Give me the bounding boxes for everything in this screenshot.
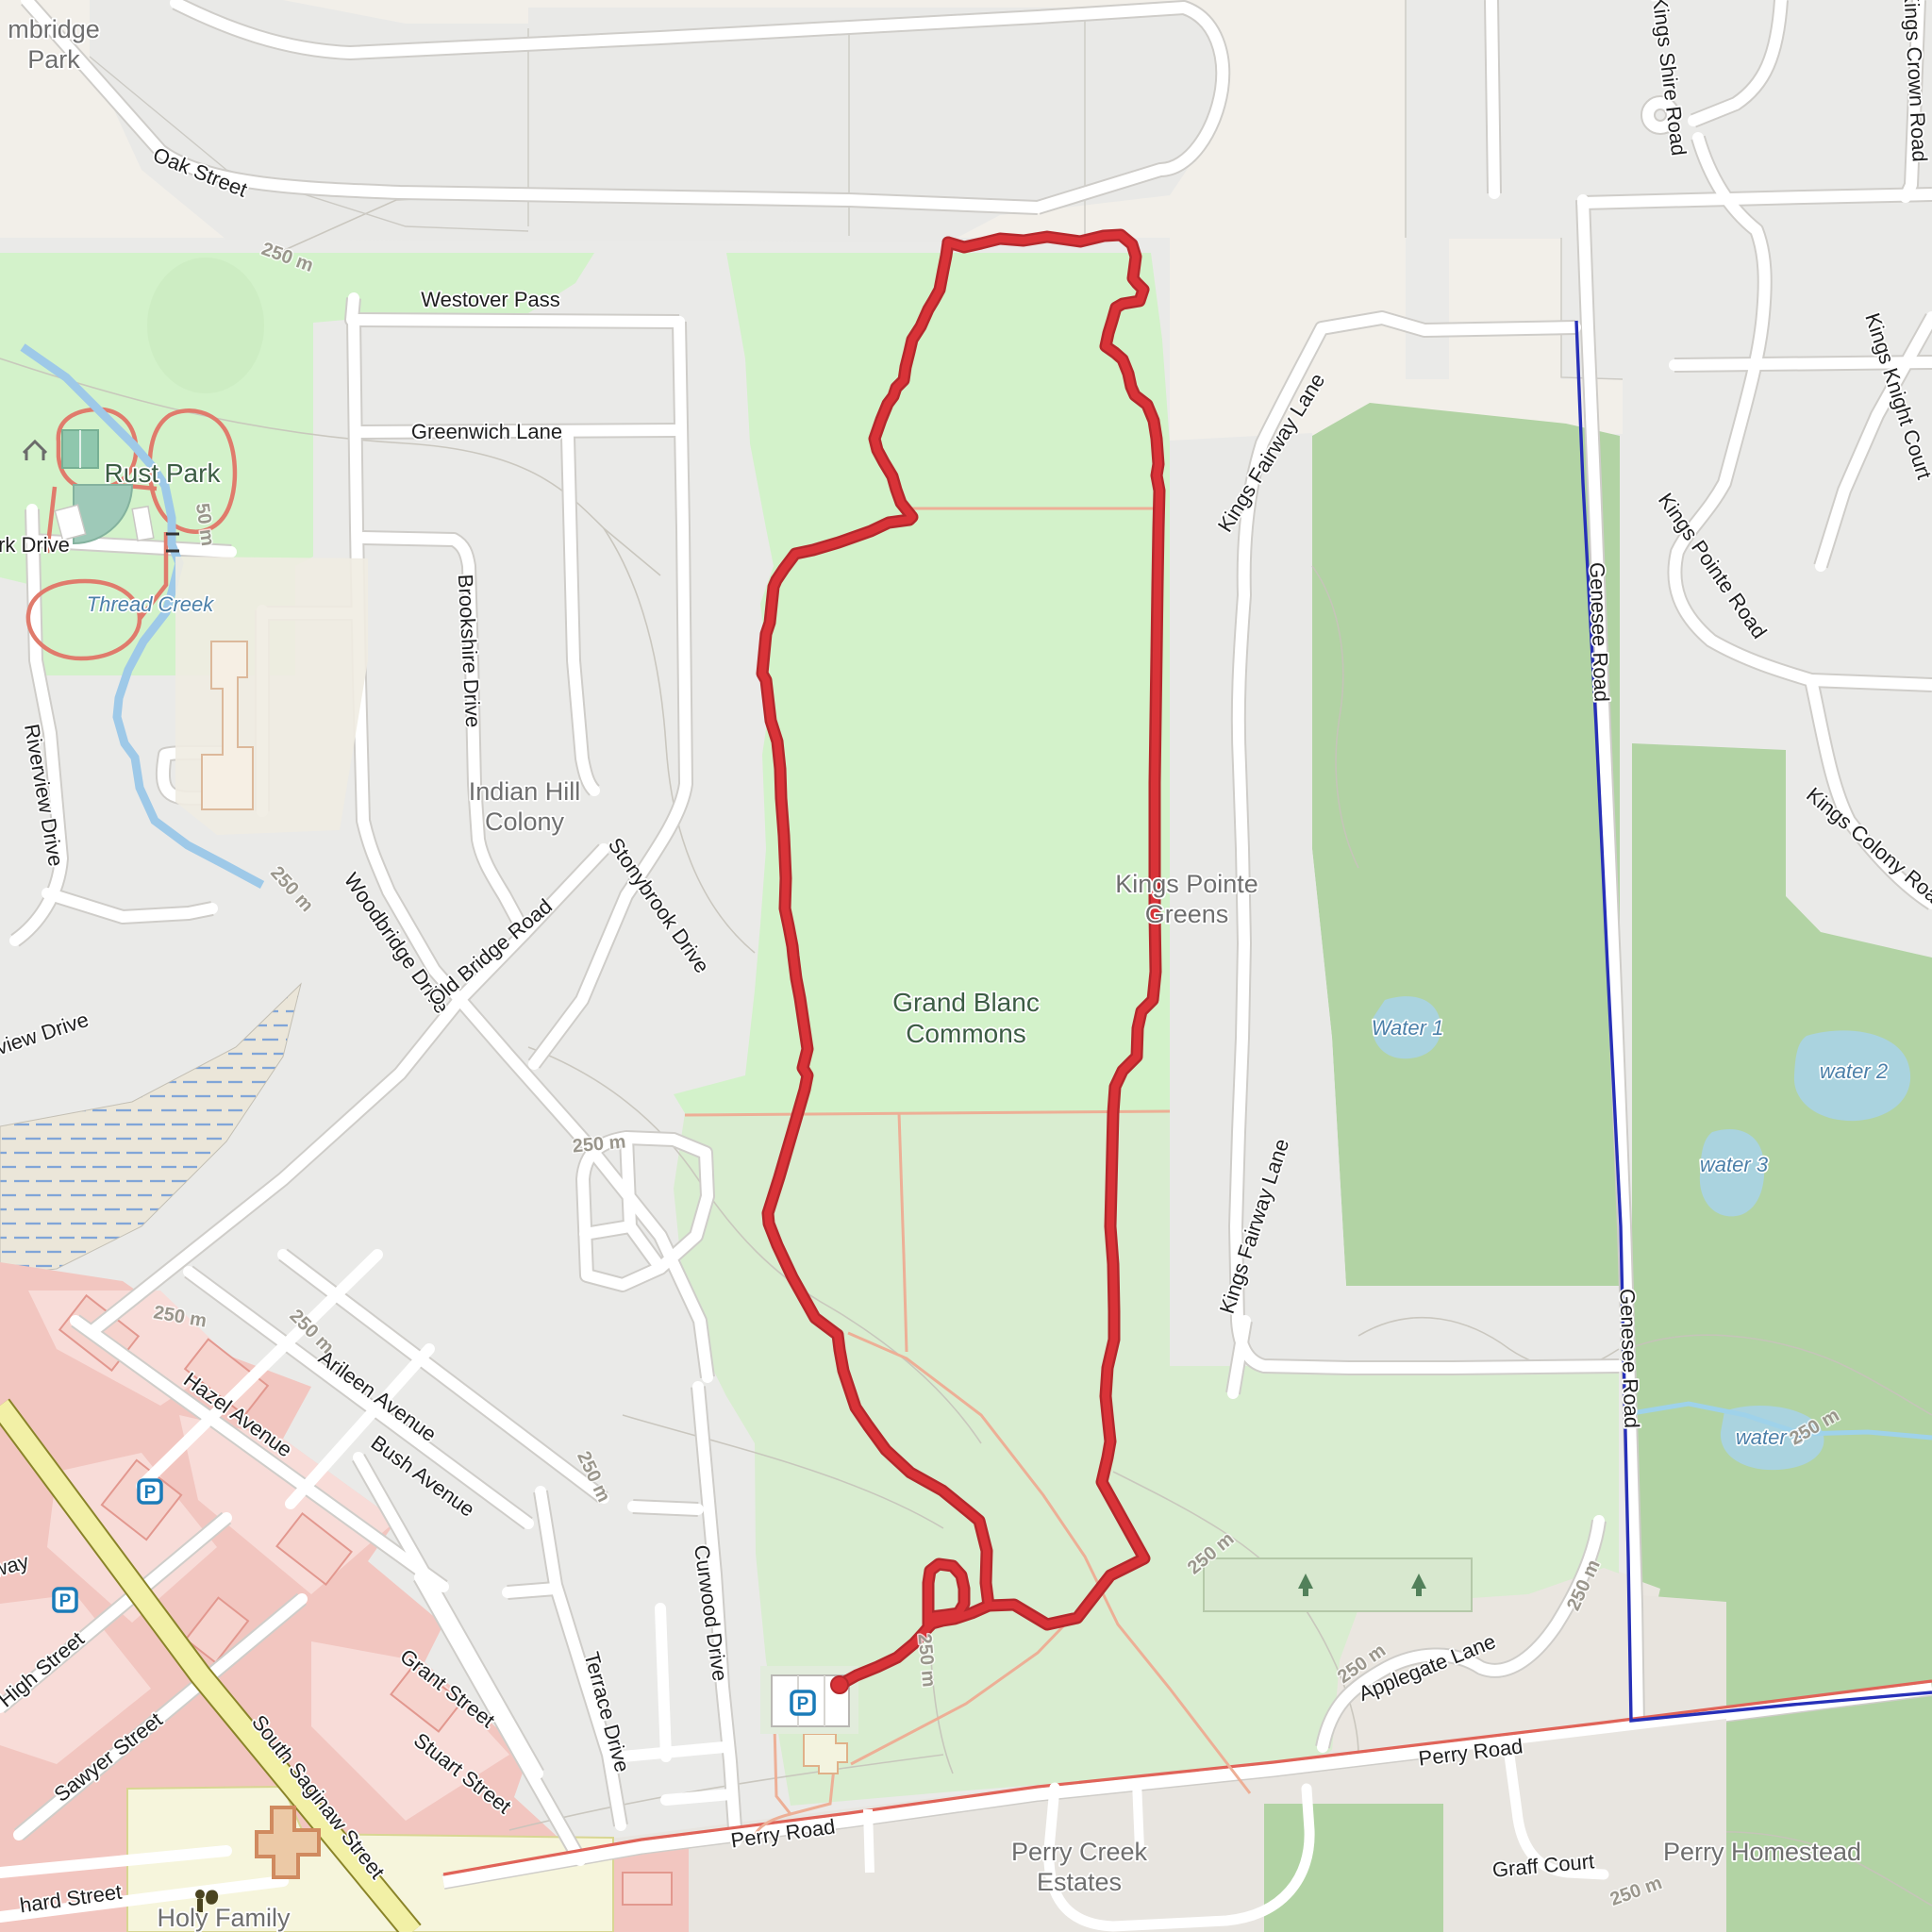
svg-text:Perry Creek: Perry Creek	[1011, 1838, 1148, 1866]
svg-text:Grand Blanc: Grand Blanc	[892, 988, 1040, 1017]
svg-text:Greens: Greens	[1145, 900, 1229, 928]
svg-text:Westover Pass: Westover Pass	[421, 288, 560, 311]
svg-text:Greenwich Lane: Greenwich Lane	[411, 420, 562, 443]
svg-text:Kings Pointe: Kings Pointe	[1115, 870, 1258, 898]
svg-text:Indian Hill: Indian Hill	[469, 777, 581, 806]
svg-text:Water 1: Water 1	[1372, 1016, 1444, 1040]
svg-text:Commons: Commons	[906, 1019, 1026, 1048]
svg-text:Rust Park: Rust Park	[105, 458, 222, 488]
svg-text:P: P	[797, 1694, 809, 1714]
svg-text:Thread Creek: Thread Creek	[87, 592, 215, 616]
svg-text:Estates: Estates	[1037, 1868, 1122, 1896]
svg-text:water 2: water 2	[1820, 1059, 1888, 1083]
svg-text:water 3: water 3	[1700, 1153, 1769, 1176]
svg-text:Park: Park	[27, 45, 80, 74]
svg-text:P: P	[59, 1591, 72, 1611]
svg-text:Genesee Road: Genesee Road	[1615, 1289, 1643, 1429]
svg-text:Colony: Colony	[485, 808, 565, 836]
svg-text:Genesee Road: Genesee Road	[1585, 562, 1613, 703]
svg-text:Holy Family: Holy Family	[157, 1904, 291, 1932]
svg-text:mbridge: mbridge	[8, 15, 100, 43]
svg-text:rk Drive: rk Drive	[0, 533, 70, 557]
svg-text:P: P	[144, 1483, 157, 1503]
svg-text:Perry Homestead: Perry Homestead	[1663, 1838, 1861, 1866]
